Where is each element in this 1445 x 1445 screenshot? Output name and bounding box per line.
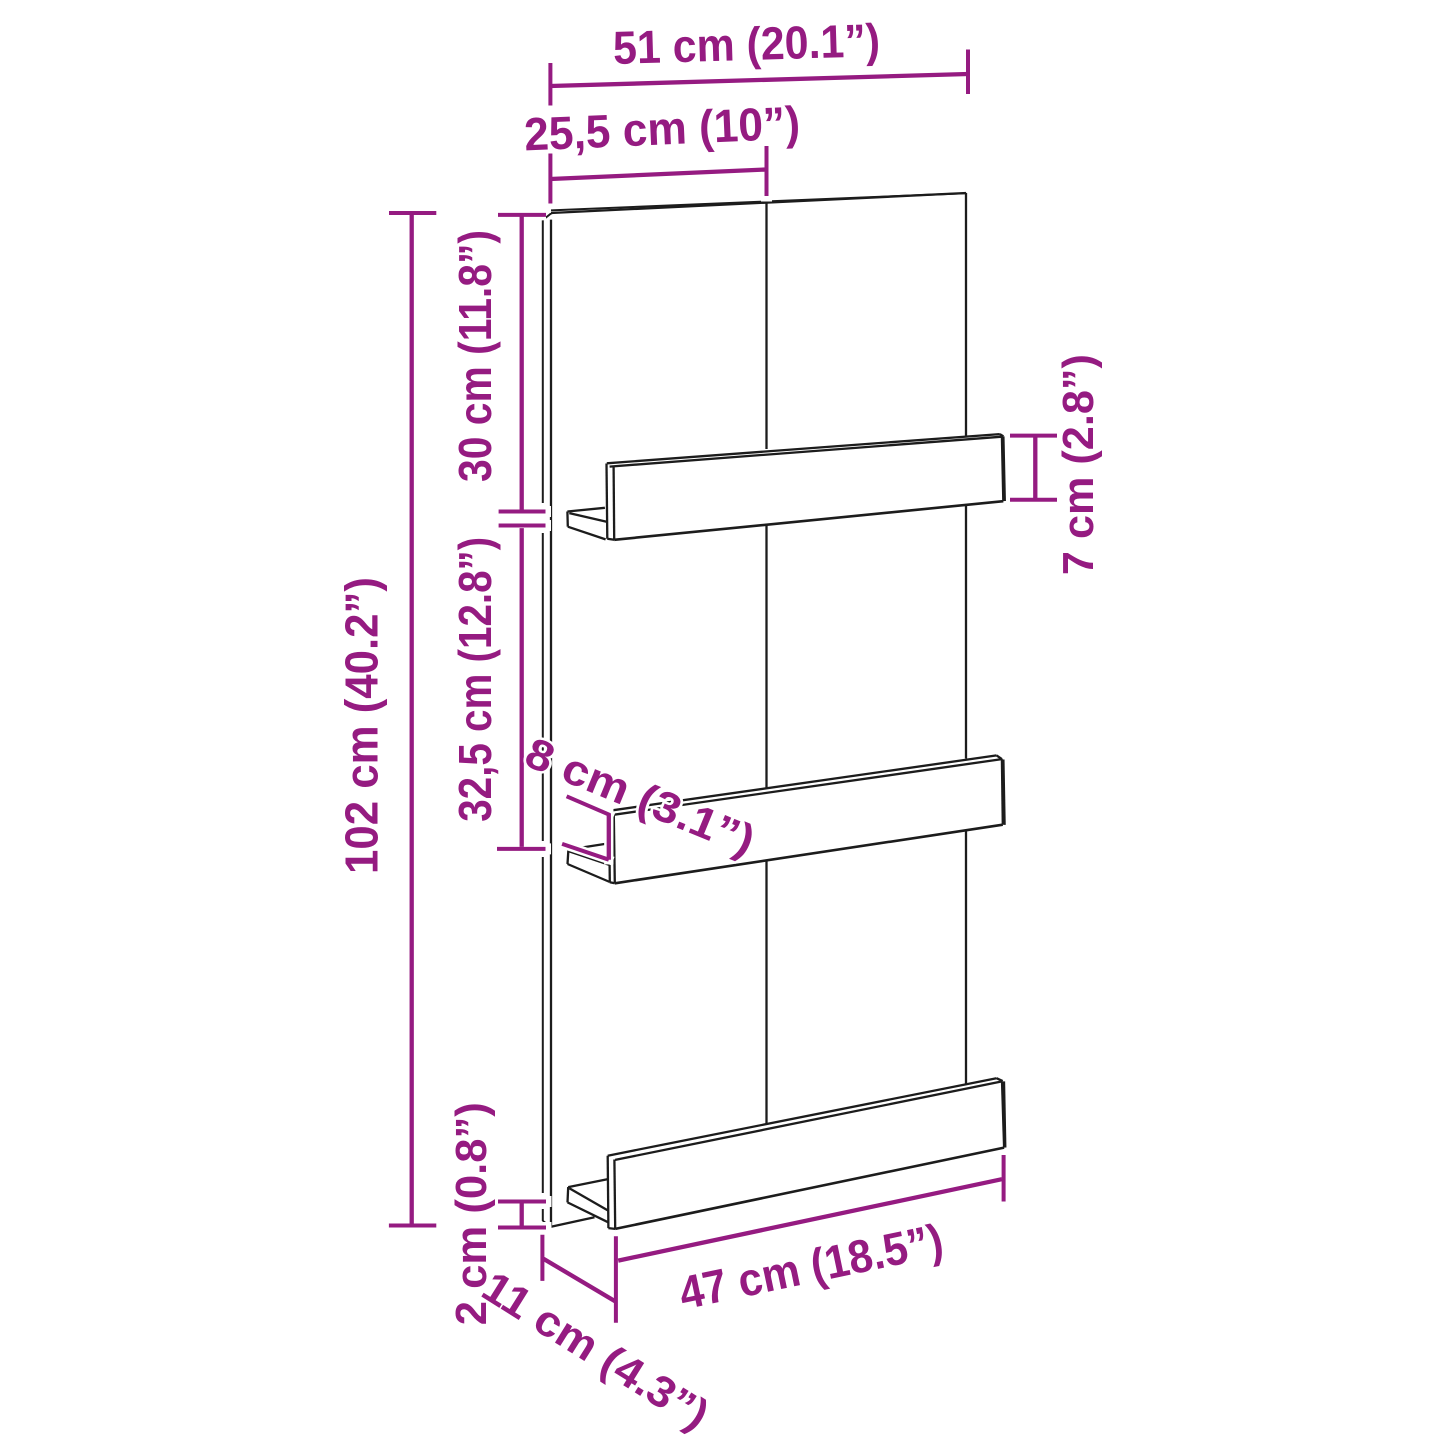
svg-text:32,5 cm (12.8”): 32,5 cm (12.8”) [449,537,501,822]
svg-text:51 cm (20.1”): 51 cm (20.1”) [612,14,880,74]
svg-text:7 cm (2.8”): 7 cm (2.8”) [1055,354,1103,575]
svg-text:102 cm (40.2”): 102 cm (40.2”) [336,577,388,874]
svg-text:30 cm (11.8”): 30 cm (11.8”) [449,230,501,482]
